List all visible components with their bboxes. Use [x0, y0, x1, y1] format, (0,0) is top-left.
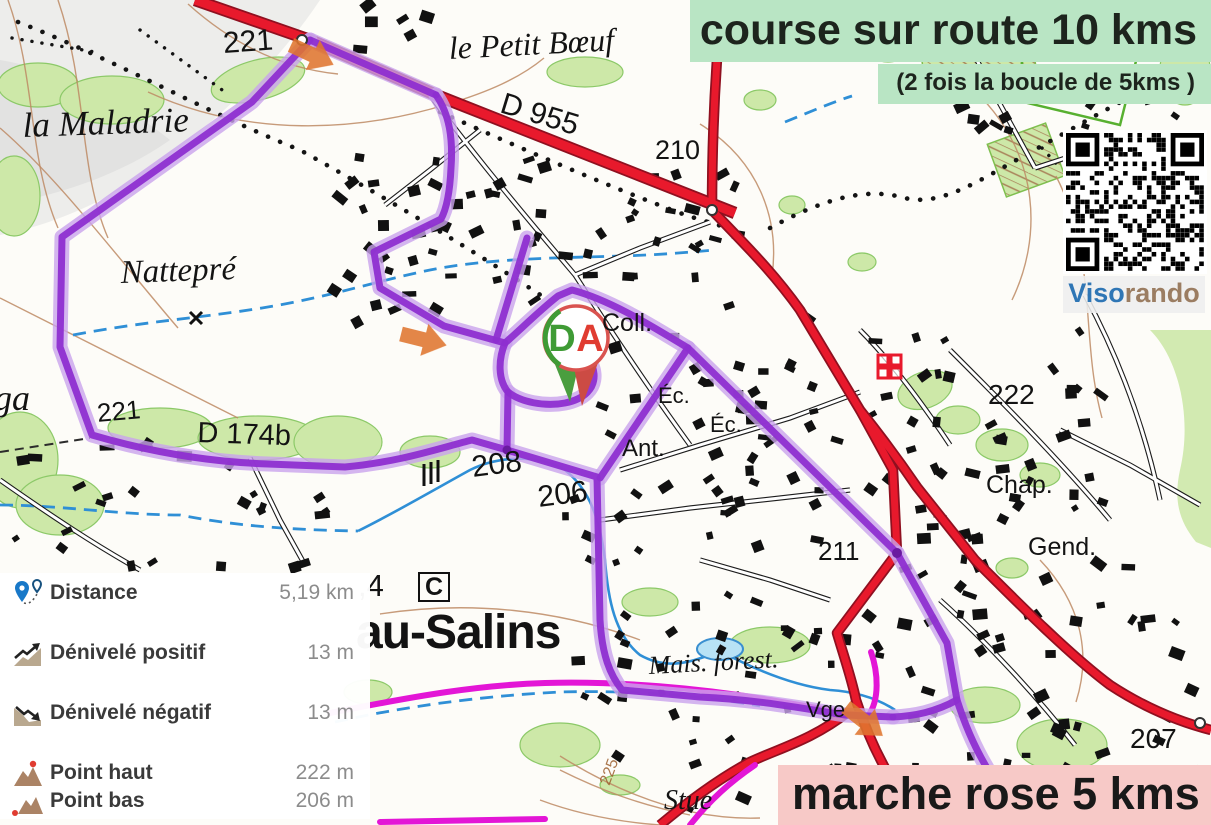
- brand-brown-text: rando: [1125, 278, 1200, 308]
- descent-icon: [12, 699, 46, 727]
- stat-row-distance: Distance5,19 km: [12, 579, 354, 607]
- stat-row-high-point: Point haut222 m: [12, 759, 354, 787]
- stat-value: 5,19 km: [279, 581, 354, 605]
- stat-label: Point bas: [50, 789, 296, 813]
- visorando-logo: Visorando: [1063, 276, 1205, 313]
- stat-value: 13 m: [307, 641, 354, 665]
- stat-label: Distance: [50, 581, 279, 605]
- event-banner-course-subtitle: (2 fois la boucle de 5kms ): [878, 64, 1211, 104]
- stat-label: Point haut: [50, 761, 296, 785]
- hospital-cross-icon: [876, 353, 902, 379]
- qr-block: Visorando: [1063, 130, 1205, 313]
- low-point-icon: [12, 787, 46, 815]
- stat-label: Dénivelé négatif: [50, 701, 307, 725]
- stat-label: Dénivelé positif: [50, 641, 307, 665]
- depart-letter: D: [548, 318, 575, 360]
- stat-row-ascent: Dénivelé positif13 m: [12, 639, 354, 667]
- visorando-route-map: D A 221le Petit BœufD 955210la MaladrieN…: [0, 0, 1211, 825]
- route-stats-panel: Distance5,19 kmDénivelé positif13 mDéniv…: [0, 573, 370, 819]
- stat-row-descent: Dénivelé négatif13 m: [12, 699, 354, 727]
- ascent-icon: [12, 639, 46, 667]
- route-node: [892, 548, 902, 558]
- high-point-icon: [12, 759, 46, 787]
- qr-code: [1063, 130, 1207, 274]
- woods-patch: [1150, 330, 1211, 548]
- road-node: [1195, 718, 1205, 728]
- stat-value: 222 m: [296, 761, 354, 785]
- distance-icon: [12, 579, 46, 607]
- stat-row-low-point: Point bas206 m: [12, 787, 354, 815]
- route-node: [503, 446, 512, 455]
- calvary-cross-icon: [190, 312, 202, 324]
- stat-value: 13 m: [307, 701, 354, 725]
- event-banner-marche: marche rose 5 kms: [778, 765, 1211, 825]
- stat-value: 206 m: [296, 789, 354, 813]
- road-node: [707, 205, 717, 215]
- brand-blue-text: Viso: [1068, 278, 1125, 308]
- arrivee-letter: A: [576, 318, 603, 360]
- event-banner-course: course sur route 10 kms: [690, 0, 1211, 62]
- start-finish-marker: D A: [544, 306, 608, 406]
